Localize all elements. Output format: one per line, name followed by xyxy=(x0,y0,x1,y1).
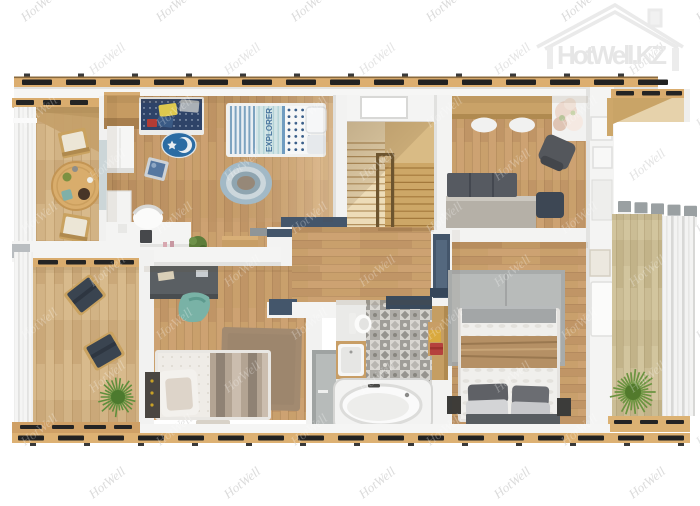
svg-text:EXPLORER: EXPLORER xyxy=(265,108,274,152)
